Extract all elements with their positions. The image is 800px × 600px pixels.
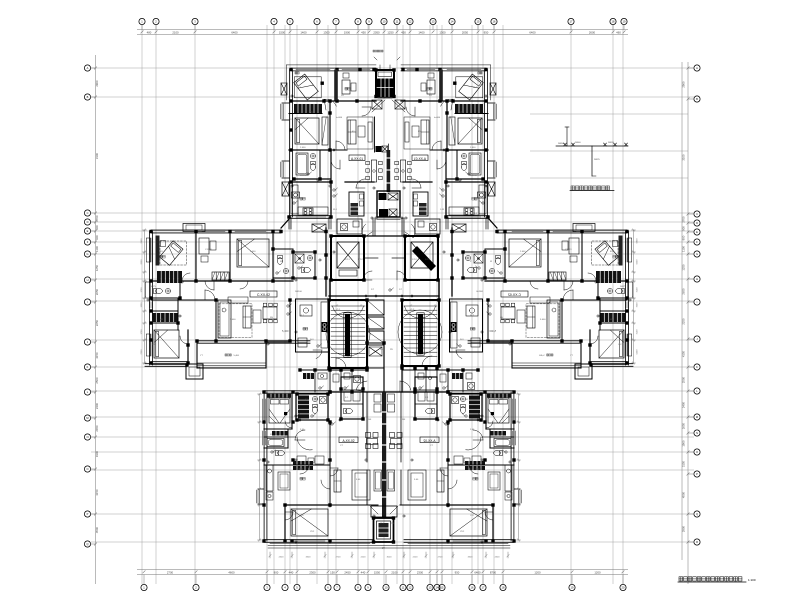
svg-text:4500: 4500: [682, 491, 686, 498]
svg-text:K: K: [87, 365, 89, 369]
svg-text:2100: 2100: [391, 570, 398, 574]
svg-text:6400: 6400: [529, 31, 536, 35]
svg-text:DN50: DN50: [558, 143, 564, 145]
svg-text:1300: 1300: [323, 31, 330, 35]
svg-text:A: A: [87, 66, 89, 70]
svg-text:150: 150: [330, 570, 335, 574]
svg-text:4500: 4500: [95, 526, 99, 533]
svg-text:1900: 1900: [95, 450, 99, 457]
svg-text:450: 450: [361, 31, 366, 35]
svg-text:2250: 2250: [95, 319, 99, 326]
svg-text:2700: 2700: [438, 556, 444, 558]
svg-text:2400: 2400: [141, 238, 143, 244]
svg-text:2300: 2300: [309, 570, 316, 574]
svg-text:2650: 2650: [95, 288, 99, 295]
svg-text:2700: 2700: [167, 570, 174, 574]
svg-text:DT-2: DT-2: [412, 259, 418, 261]
svg-text:2650: 2650: [682, 422, 686, 429]
svg-text:1700: 1700: [141, 329, 143, 335]
svg-text:A-XX-01: A-XX-01: [351, 157, 363, 161]
svg-text:R: R: [696, 540, 698, 544]
svg-text:1:100: 1:100: [748, 578, 756, 582]
svg-text:B: B: [696, 97, 698, 101]
svg-text:950: 950: [455, 570, 460, 574]
svg-text:O: O: [696, 450, 698, 454]
svg-text:C: C: [696, 212, 698, 216]
svg-text:ZH: ZH: [500, 317, 503, 319]
svg-text:460: 460: [616, 31, 621, 35]
svg-text:H: H: [696, 277, 698, 281]
svg-text:YD: YD: [460, 112, 463, 114]
svg-text:3150: 3150: [95, 489, 99, 496]
svg-text:DN100: DN100: [300, 175, 308, 177]
svg-text:DN32: DN32: [608, 142, 614, 144]
svg-text:Q: Q: [696, 512, 698, 516]
svg-text:5,400: 5,400: [282, 329, 289, 333]
svg-text:2050: 2050: [373, 31, 380, 35]
svg-text:1250: 1250: [387, 31, 394, 35]
svg-text:5.400: 5.400: [230, 319, 236, 321]
svg-text:2300: 2300: [141, 349, 143, 355]
svg-text:2900: 2900: [95, 80, 99, 87]
svg-text:P: P: [696, 472, 698, 476]
svg-text:1400: 1400: [418, 31, 425, 35]
svg-text:1250: 1250: [682, 264, 686, 271]
svg-text:3300: 3300: [306, 556, 312, 558]
svg-text:YD: YD: [310, 112, 313, 114]
svg-text:480: 480: [147, 31, 152, 35]
svg-text:2300: 2300: [279, 556, 285, 558]
svg-text:PD: PD: [380, 349, 383, 351]
svg-text:DT-1: DT-1: [345, 259, 351, 261]
svg-text:2500: 2500: [95, 377, 99, 384]
svg-text:E: E: [696, 230, 698, 234]
svg-text:2000: 2000: [141, 259, 143, 265]
svg-text:2900: 2900: [682, 81, 686, 88]
svg-text:DN25: DN25: [594, 159, 600, 161]
svg-text:2400: 2400: [682, 401, 686, 408]
svg-text:1300: 1300: [439, 31, 446, 35]
svg-text:3000: 3000: [387, 556, 393, 558]
svg-text:2450: 2450: [344, 570, 351, 574]
svg-text:A-XX-02: A-XX-02: [342, 439, 354, 443]
svg-text:2700: 2700: [682, 216, 686, 223]
svg-text:1100: 1100: [95, 246, 99, 252]
svg-text:900: 900: [95, 235, 99, 240]
svg-text:2600: 2600: [589, 31, 596, 35]
svg-text:2650: 2650: [95, 425, 99, 432]
svg-text:6400: 6400: [231, 31, 238, 35]
svg-text:DT-1: DT-1: [425, 259, 431, 261]
svg-text:DN: DN: [368, 419, 372, 421]
svg-text:DN75: DN75: [150, 286, 156, 288]
svg-text:440: 440: [289, 570, 294, 574]
svg-text:1250: 1250: [95, 264, 99, 271]
svg-text:1550: 1550: [374, 570, 381, 574]
svg-text:C1223: C1223: [565, 249, 572, 251]
svg-text:1300: 1300: [141, 302, 143, 308]
svg-text:4150: 4150: [682, 350, 686, 357]
svg-text:G: G: [86, 252, 88, 256]
svg-text:1700: 1700: [141, 287, 143, 293]
svg-text:D: D: [87, 220, 89, 224]
svg-text:ZH: ZH: [270, 317, 273, 319]
svg-text:DN40: DN40: [575, 142, 581, 144]
svg-text:2650: 2650: [682, 288, 686, 295]
svg-text:2050: 2050: [462, 31, 469, 35]
svg-text:3100: 3100: [95, 152, 99, 159]
svg-text:2400: 2400: [95, 402, 99, 409]
svg-text:5.400: 5.400: [540, 319, 546, 321]
svg-text:M: M: [86, 416, 88, 420]
svg-text:N: N: [696, 431, 698, 435]
svg-text:3100: 3100: [682, 154, 686, 161]
svg-text:1900: 1900: [344, 31, 351, 35]
svg-text:1500: 1500: [279, 31, 286, 35]
svg-text:450: 450: [401, 31, 406, 35]
svg-text:2300: 2300: [495, 556, 501, 558]
svg-text:2200: 2200: [413, 556, 419, 558]
svg-text:1200: 1200: [534, 570, 541, 574]
svg-text:2.400: 2.400: [470, 147, 476, 149]
svg-text:3150: 3150: [682, 460, 686, 467]
svg-text:DT-2: DT-2: [358, 259, 364, 261]
svg-text:DN75: DN75: [620, 286, 626, 288]
svg-text:2300: 2300: [417, 570, 424, 574]
svg-text:900: 900: [95, 225, 99, 230]
svg-text:H: H: [87, 278, 89, 282]
svg-text:6400: 6400: [474, 570, 481, 574]
svg-text:2.400: 2.400: [520, 251, 526, 253]
svg-text:C: C: [87, 211, 89, 215]
svg-text:2900: 2900: [682, 525, 686, 532]
svg-text:1900: 1900: [682, 440, 686, 447]
svg-text:950: 950: [484, 31, 489, 35]
svg-text:DN100: DN100: [470, 175, 478, 177]
svg-text:2250: 2250: [682, 318, 686, 325]
svg-text:4600: 4600: [228, 570, 235, 574]
svg-text:1400: 1400: [300, 31, 307, 35]
svg-text:C-XX-02: C-XX-02: [257, 293, 270, 297]
svg-text:h=900: h=900: [434, 117, 441, 119]
svg-text:900: 900: [682, 235, 686, 240]
svg-text:2700: 2700: [336, 556, 342, 558]
svg-text:M: M: [696, 415, 698, 419]
svg-text:Q: Q: [86, 542, 88, 546]
svg-text:G: G: [696, 252, 698, 256]
svg-text:E: E: [87, 229, 89, 233]
svg-text:N: N: [87, 435, 89, 439]
svg-text:5,400: 5,400: [234, 355, 240, 357]
svg-text:2100: 2100: [172, 31, 179, 35]
svg-text:DN: DN: [402, 419, 406, 421]
svg-text:A: A: [696, 66, 698, 70]
svg-text:K: K: [696, 365, 698, 369]
svg-text:2200: 2200: [361, 556, 367, 558]
svg-text:D: D: [696, 221, 698, 225]
svg-text:B: B: [87, 95, 89, 99]
svg-text:PD: PD: [390, 349, 393, 351]
svg-text:h=900: h=900: [336, 117, 343, 119]
svg-text:1100: 1100: [682, 246, 686, 252]
svg-text:4150: 4150: [95, 352, 99, 359]
svg-text:2.400: 2.400: [250, 251, 256, 253]
svg-text:O: O: [86, 467, 88, 471]
svg-text:440: 440: [361, 570, 366, 574]
svg-text:P: P: [87, 512, 89, 516]
svg-text:DN100: DN100: [295, 291, 303, 293]
svg-text:2500: 2500: [682, 376, 686, 383]
svg-text:900: 900: [682, 226, 686, 231]
svg-text:2.400: 2.400: [300, 147, 306, 149]
svg-text:8700: 8700: [490, 570, 497, 574]
svg-text:900: 900: [274, 570, 279, 574]
svg-text:1200: 1200: [594, 570, 601, 574]
svg-text:3300: 3300: [468, 556, 474, 558]
svg-text:C1223: C1223: [205, 249, 212, 251]
